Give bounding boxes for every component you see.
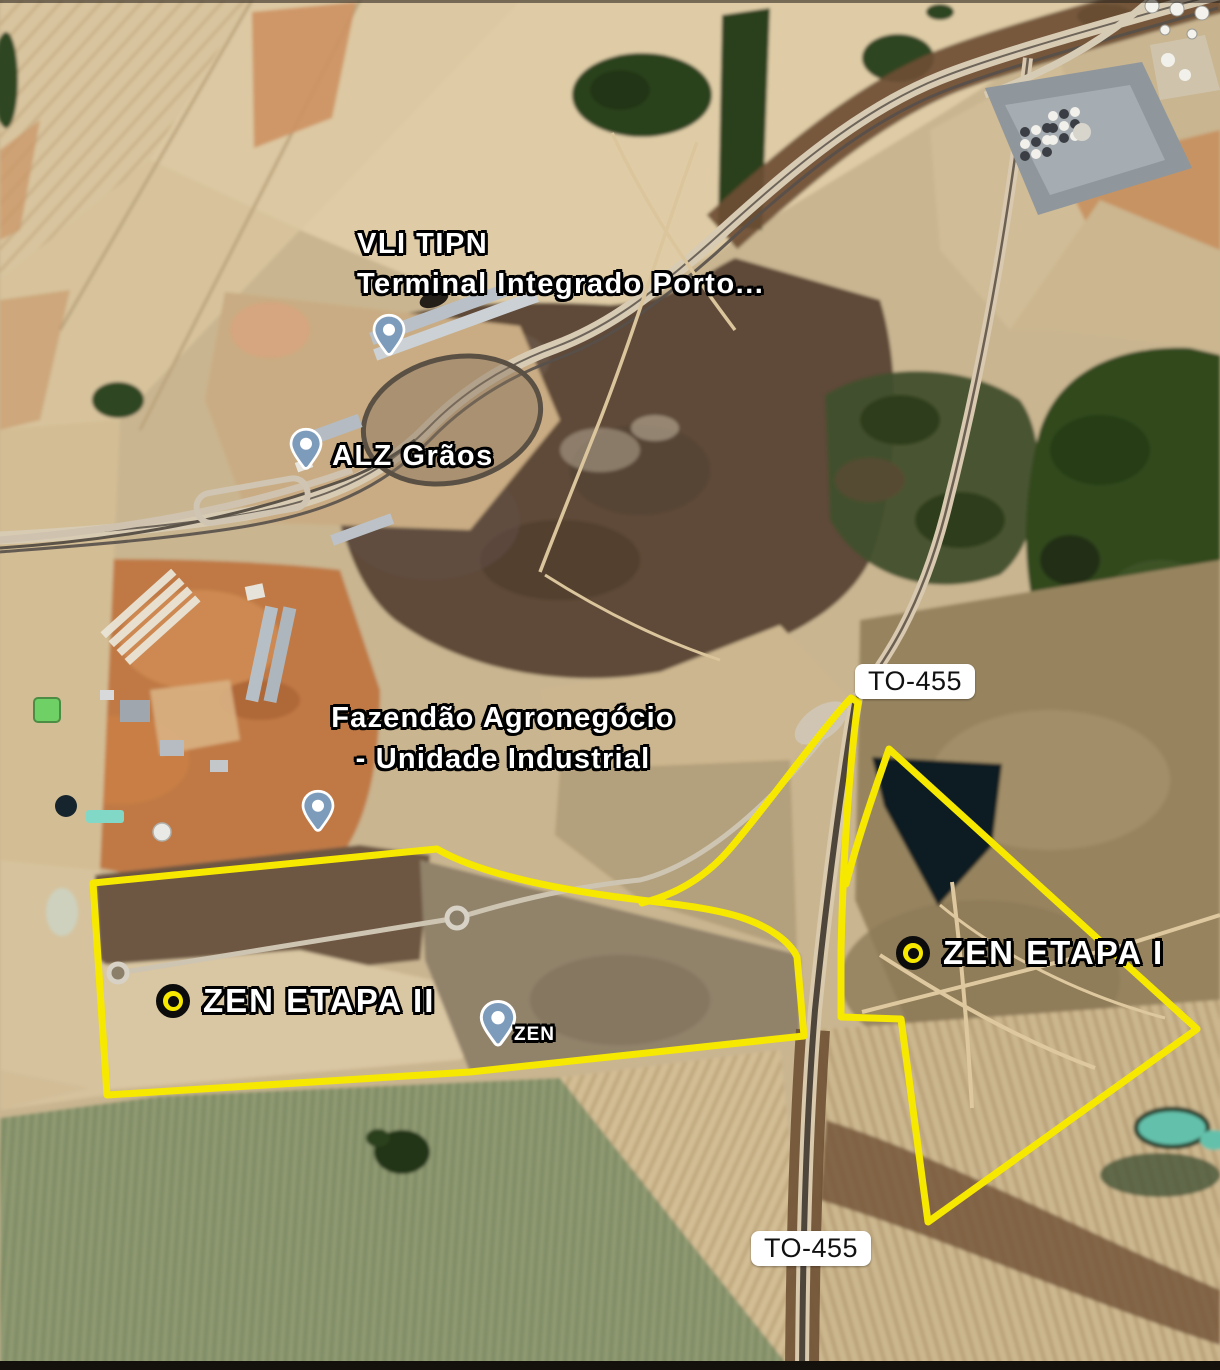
zen-etapa-i-marker[interactable] <box>896 936 930 970</box>
zen-pin[interactable] <box>478 999 518 1049</box>
label-zen-etapa-i[interactable]: ZEN ETAPA I <box>943 933 1164 973</box>
label-fazendao-line1: Fazendão Agronegócio <box>331 702 675 734</box>
label-alz-graos[interactable]: ALZ Grãos <box>332 436 494 476</box>
label-zen-etapa-ii[interactable]: ZEN ETAPA II <box>203 981 435 1021</box>
label-vli-line2: Terminal Integrado Porto... <box>357 268 764 300</box>
label-vli-terminal[interactable]: VLI TIPNTerminal Integrado Porto... <box>357 224 764 304</box>
alz-graos-pin[interactable] <box>288 427 324 472</box>
label-fazendao[interactable]: Fazendão Agronegócio- Unidade Industrial <box>268 698 738 780</box>
fazendao-pin[interactable] <box>300 789 336 834</box>
vli-terminal-pin[interactable] <box>371 313 407 358</box>
road-badge-to455-north: TO-455 <box>855 664 975 699</box>
road-badge-to455-south: TO-455 <box>751 1231 871 1266</box>
label-zen[interactable]: ZEN <box>514 1024 555 1046</box>
satellite-map[interactable]: VLI TIPNTerminal Integrado Porto... ALZ … <box>0 0 1220 1370</box>
label-fazendao-line2: - Unidade Industrial <box>356 743 651 775</box>
place-pin-icon <box>300 789 336 834</box>
place-pin-icon <box>371 313 407 358</box>
zen-etapa-ii-marker[interactable] <box>156 984 190 1018</box>
label-vli-line1: VLI TIPN <box>357 228 488 260</box>
place-pin-icon <box>288 427 324 472</box>
place-pin-icon <box>478 999 518 1049</box>
satellite-imagery <box>0 0 1220 1370</box>
